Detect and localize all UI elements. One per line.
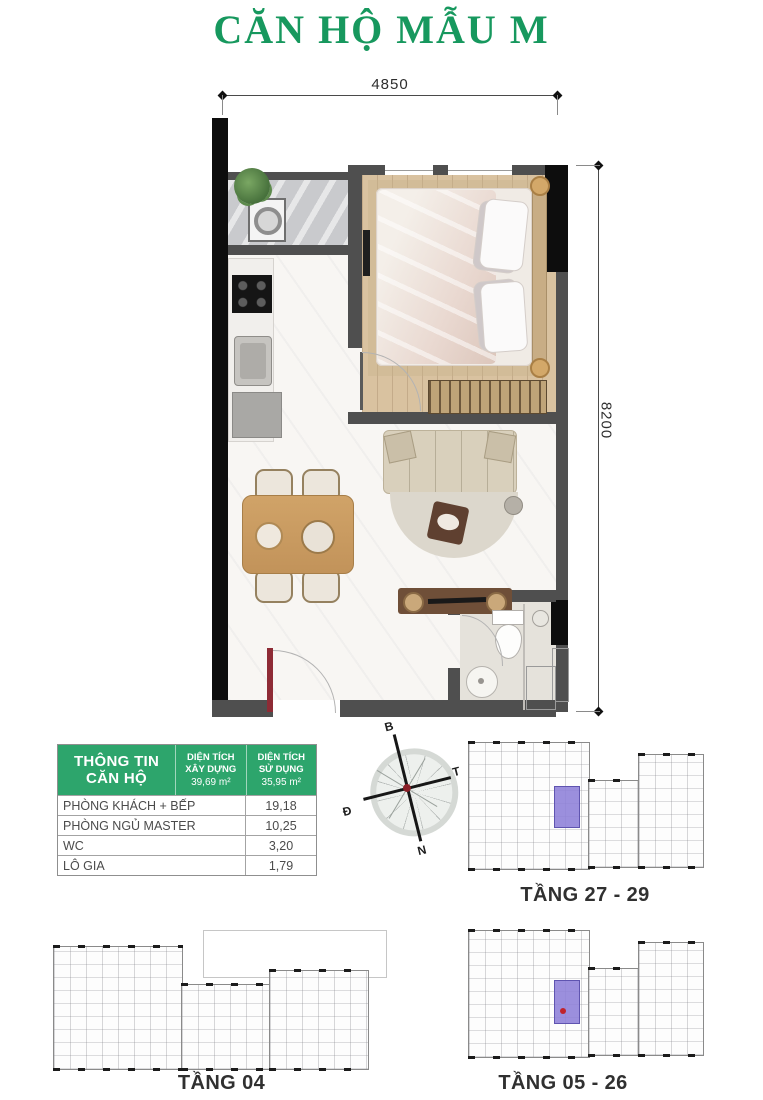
room-label: PHÒNG KHÁCH + BẾP (58, 796, 246, 815)
column-usable-area: DIỆN TÍCH SỬ DỤNG 35,95 m² (246, 745, 316, 795)
shower-glass (526, 666, 556, 710)
table-row: WC 3,20 (58, 835, 316, 855)
table-row: PHÒNG KHÁCH + BẾP 19,18 (58, 795, 316, 815)
room-area: 3,20 (246, 839, 316, 853)
kitchen-cabinet (232, 392, 282, 438)
column-value: 39,69 m² (191, 777, 230, 788)
keyplan-block (638, 942, 704, 1056)
keyplan-block (53, 946, 183, 1070)
plant (234, 168, 270, 204)
keyplan-block (181, 984, 271, 1070)
wall-segment (348, 165, 545, 175)
table-row: LÔ GIA 1,79 (58, 855, 316, 875)
keyplan-block (588, 780, 640, 868)
bed-pillow (478, 198, 529, 272)
keyplan-block (269, 970, 369, 1070)
tv (428, 597, 486, 604)
column-label: DIỆN TÍCH XÂY DỰNG (185, 752, 236, 776)
dimension-width: 4850 (222, 88, 558, 118)
bedroom-tv (363, 230, 370, 276)
dimension-tick (557, 95, 558, 115)
keyplan-block (638, 754, 704, 868)
keyplan-block (588, 968, 640, 1056)
compass-east-label: Đ (341, 803, 353, 819)
room-label: WC (58, 836, 246, 855)
table-row: PHÒNG NGỦ MASTER 10,25 (58, 815, 316, 835)
nightstand-lamp (530, 176, 550, 196)
table-centerpiece (301, 520, 335, 554)
dimension-width-label: 4850 (222, 76, 558, 93)
room-area: 19,18 (246, 799, 316, 813)
dining-table (242, 495, 354, 574)
dimension-tick (576, 711, 600, 712)
sofa (383, 430, 517, 494)
compass-rose: B T N Đ (340, 721, 473, 854)
highlighted-unit (554, 786, 580, 828)
sofa-cushion (484, 431, 516, 463)
column-value: 35,95 m² (262, 777, 301, 788)
wall-segment (556, 272, 568, 712)
dimension-height-label: 8200 (598, 391, 615, 451)
compass-north-label: B (383, 719, 395, 735)
nightstand-lamp (530, 358, 550, 378)
keyplan-floors-05-26 (460, 928, 710, 1060)
column-built-area: DIỆN TÍCH XÂY DỰNG 39,69 m² (175, 745, 245, 795)
kitchen-sink (234, 336, 272, 386)
dining-chair (302, 569, 340, 603)
window (385, 165, 433, 175)
side-table (504, 496, 523, 515)
washing-machine (248, 198, 286, 242)
room-label: LÔ GIA (58, 856, 246, 875)
toilet (492, 610, 524, 625)
speaker (403, 592, 424, 613)
wall-segment (212, 118, 228, 717)
keyplan-floor-04 (53, 938, 390, 1073)
page-title: CĂN HỘ MẪU M (0, 6, 763, 53)
window (448, 165, 512, 175)
dining-chair (255, 569, 293, 603)
highlighted-unit (554, 980, 580, 1024)
bed-headboard (532, 188, 547, 368)
wall-segment (212, 700, 273, 717)
wall-segment (228, 245, 348, 255)
sofa-cushion (383, 430, 416, 463)
dimension-height: 8200 (592, 165, 632, 712)
wall-segment (551, 600, 568, 645)
keyplan-label: TẦNG 04 (53, 1072, 390, 1095)
dimension-tick (576, 165, 600, 166)
keyplan-label: TẦNG 27 - 29 (460, 884, 710, 907)
compass-south-label: N (416, 842, 428, 858)
coffee-table (426, 501, 469, 546)
table-header: THÔNG TIN CĂN HỘ DIỆN TÍCH XÂY DỰNG 39,6… (58, 745, 316, 795)
keyplan-floors-27-29 (460, 740, 710, 872)
compass-icon: B T N Đ (352, 733, 462, 843)
table-plate (255, 522, 283, 550)
dimension-line (222, 95, 558, 96)
wardrobe (428, 380, 547, 414)
table-title: THÔNG TIN CĂN HỘ (58, 745, 175, 795)
keyplan-label: TẦNG 05 - 26 (438, 1072, 688, 1095)
apartment-floor-plan (210, 118, 568, 718)
bed-pillow (480, 281, 529, 354)
room-area: 10,25 (246, 819, 316, 833)
wall-segment (348, 172, 362, 348)
unit-marker-dot (560, 1008, 566, 1014)
wc-sink (466, 666, 498, 698)
column-label: DIỆN TÍCH SỬ DỤNG (258, 752, 306, 776)
shower-head (532, 610, 549, 627)
apartment-info-table: THÔNG TIN CĂN HỘ DIỆN TÍCH XÂY DỰNG 39,6… (57, 744, 317, 876)
room-area: 1,79 (246, 859, 316, 873)
dimension-tick (222, 95, 223, 115)
room-label: PHÒNG NGỦ MASTER (58, 816, 246, 835)
brochure-page: CĂN HỘ MẪU M 4850 8200 (0, 0, 763, 1100)
cooktop (232, 275, 272, 313)
bed (376, 188, 532, 366)
